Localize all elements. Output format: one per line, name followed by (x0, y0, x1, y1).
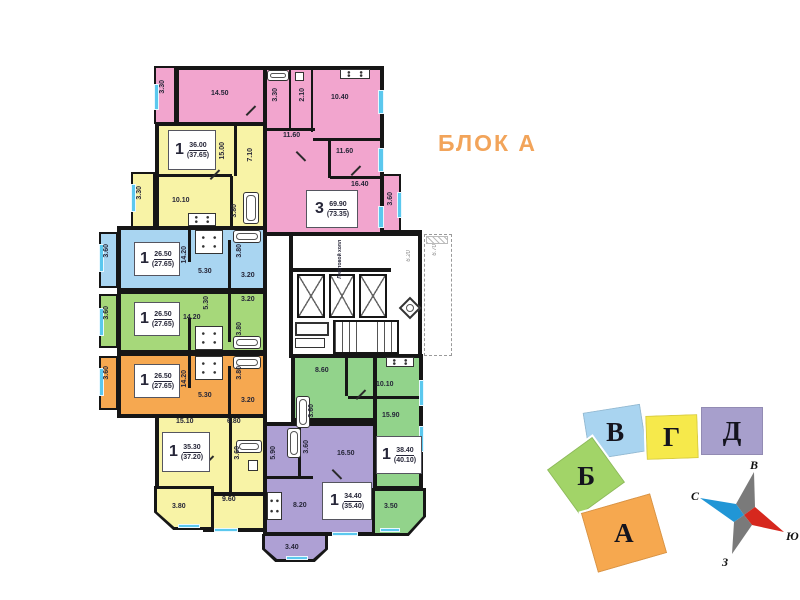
outside-zone (424, 234, 452, 356)
window (286, 556, 308, 560)
wall (265, 128, 315, 131)
service-room (295, 322, 329, 336)
stove-icon (195, 356, 223, 380)
block-title: БЛОК А (438, 130, 537, 157)
compass-label-south: Ю (785, 529, 799, 543)
balcony-area-label: 3.30 (159, 80, 166, 94)
rooms-count: 3 (315, 200, 324, 218)
room-area-label: 8.20 (293, 502, 307, 509)
room-area-label: 10.40 (331, 94, 349, 101)
rooms-count: 1 (140, 372, 149, 390)
rooms-count: 1 (140, 250, 149, 268)
site-map-block-label: Б (577, 461, 595, 492)
elevator-shaft-icon (297, 274, 325, 318)
stove-icon (267, 492, 282, 520)
balcony-area-label: 3.50 (384, 503, 398, 510)
wall (188, 228, 191, 262)
window (178, 524, 200, 528)
apartment-info-box-pink: 3 69.90(73.35) (306, 190, 358, 228)
room-area-label: 3.80 (231, 204, 238, 218)
bathtub-icon (243, 192, 259, 224)
site-map-block-label: Г (663, 422, 680, 453)
bathtub-icon (287, 428, 301, 458)
toilet-icon (248, 460, 258, 471)
compass-label-west: З (721, 555, 728, 569)
balcony-area-label: 3.60 (103, 244, 110, 258)
wall (234, 124, 237, 176)
wall (265, 476, 313, 479)
apartment-area-total: (27.65) (152, 383, 174, 390)
room-area-label: 5.90 (270, 446, 277, 460)
room-area-label: 11.60 (283, 132, 300, 139)
stove-icon (386, 357, 414, 367)
room-area-label: 14.50 (211, 90, 229, 97)
room-area-label: 9.60 (222, 496, 236, 503)
balcony-area-label: 3.80 (172, 503, 186, 510)
wall (230, 176, 233, 228)
room-area-label: 3.30 (272, 88, 279, 102)
room-area-label: 3.60 (303, 440, 310, 454)
apartment-info-box-blue: 1 26.50(27.65) (134, 242, 180, 276)
stairs-icon (333, 320, 399, 354)
room-area-label: 10.10 (172, 197, 190, 204)
stove-icon (340, 69, 370, 79)
wall (158, 174, 232, 177)
wall (228, 240, 231, 290)
apartment-area: 69.90 (329, 201, 347, 210)
compass-label-north: С (691, 489, 700, 503)
apartment-info-box-purple: 1 34.40(35.40) (322, 482, 372, 520)
floor-plan-page: 3.30 14.50 3.30 2.10 10.40 11.60 11.60 1… (0, 0, 800, 600)
wall (313, 138, 381, 141)
apartment-area: 26.50 (154, 251, 172, 260)
balcony-area-label: 3.40 (285, 544, 299, 551)
site-map-block-label: А (614, 518, 634, 549)
apartment-area-total: (37.20) (181, 454, 203, 461)
room-area-label: 3.20 (241, 272, 255, 279)
apartment-info-box-green: 1 26.50(27.65) (134, 302, 180, 336)
window (380, 528, 400, 532)
room-area-label: 5.30 (198, 392, 212, 399)
room-area-label: 5.30 (198, 268, 212, 275)
outside-width-label: 6.70 (432, 244, 438, 256)
room-area-label: 3.60 (308, 404, 315, 418)
apartment-area: 38.40 (396, 447, 414, 456)
wall (188, 354, 191, 388)
window (378, 148, 384, 172)
wall (289, 68, 291, 130)
room-area-label: 3.20 (241, 397, 255, 404)
rooms-count: 1 (169, 443, 178, 461)
window (378, 206, 384, 228)
room-area-label: 3.80 (236, 366, 243, 380)
apartment-area: 26.50 (154, 311, 172, 320)
apartment-area: 36.00 (189, 142, 207, 151)
toilet-icon (295, 72, 304, 81)
apartment-info-box-yellow-top: 1 36.00(37.65) (168, 130, 216, 170)
elevator-hall-label: Лифтовой холл (337, 240, 343, 279)
wall (188, 318, 191, 352)
window (332, 532, 358, 536)
wall (382, 230, 422, 234)
rooms-count: 1 (140, 310, 149, 328)
elevator-shaft-icon (359, 274, 387, 318)
room-area-label: 15.00 (219, 142, 226, 160)
rooms-count: 1 (330, 492, 339, 510)
site-map-block-a[interactable]: А (581, 493, 667, 572)
site-map-block-g[interactable]: Г (645, 414, 699, 460)
wall (328, 140, 331, 178)
compass-rose: В С Ю З (690, 458, 800, 570)
wall (229, 416, 232, 494)
apartment-area: 35.30 (183, 444, 201, 453)
apartment-area-total: (40.10) (394, 457, 416, 464)
apartment-info-box-yellow-bottom: 1 35.30(37.20) (162, 432, 210, 472)
balcony-area-label: 3.60 (387, 192, 394, 206)
room-area-label: 14.20 (181, 370, 188, 388)
room-area-label: 6.80 (227, 418, 241, 425)
apartment-area-total: (27.65) (152, 261, 174, 268)
corridor-width-label: 6.20 (406, 250, 412, 262)
wall (311, 68, 313, 132)
apartment-area: 26.50 (154, 373, 172, 382)
room-area-label: 3.80 (236, 322, 243, 336)
apartment-area-total: (37.65) (187, 152, 209, 159)
service-room (295, 338, 325, 348)
balcony-area-label: 3.60 (103, 366, 110, 380)
apartment-info-box-green-bottom: 1 38.40(40.10) (376, 436, 422, 474)
room-area-label: 3.80 (236, 244, 243, 258)
window (214, 528, 238, 532)
site-map-block-label: Д (723, 416, 742, 447)
stove-icon (195, 230, 223, 254)
window (419, 380, 424, 406)
room-area-label: 5.30 (203, 296, 210, 310)
apartment-area-total: (35.40) (342, 503, 364, 510)
compass-arm-south (744, 507, 784, 532)
room-area-label: 2.10 (299, 88, 306, 102)
room-area-label: 16.40 (351, 181, 369, 188)
elevator-shaft-icon (329, 274, 355, 318)
wall (330, 176, 382, 179)
room-area-label: 3.60 (234, 446, 241, 460)
site-map-block-d[interactable]: Д (701, 407, 763, 455)
room-area-label: 15.90 (382, 412, 400, 419)
wall (228, 292, 231, 342)
bathtub-icon (233, 336, 261, 349)
balcony-area-label: 3.30 (136, 186, 143, 200)
apartment-area-total: (73.35) (327, 211, 349, 218)
room-area-label: 11.60 (336, 148, 353, 155)
room-area-label: 14.20 (183, 314, 201, 321)
room-area-label: 3.20 (241, 296, 255, 303)
compass-label-east: В (749, 458, 758, 472)
rooms-count: 1 (382, 446, 391, 464)
room-area-label: 14.20 (181, 246, 188, 264)
window (397, 192, 402, 218)
bathtub-icon (233, 230, 261, 243)
room-area-label: 7.10 (247, 148, 254, 162)
room-area-label: 10.10 (376, 381, 394, 388)
room-area-label: 15.10 (176, 418, 194, 425)
wall (345, 356, 348, 396)
bathtub-icon (267, 70, 289, 81)
site-map-block-label: В (606, 417, 624, 448)
rooms-count: 1 (175, 141, 184, 159)
balcony-area-label: 3.60 (103, 306, 110, 320)
apartment-area: 34.40 (344, 493, 362, 502)
stove-icon (188, 213, 216, 226)
room-area-label: 8.60 (315, 367, 329, 374)
apartment-info-box-orange: 1 26.50(27.65) (134, 364, 180, 398)
wall (228, 366, 231, 416)
stove-icon (195, 326, 223, 350)
window (378, 90, 384, 114)
apartment-area-total: (27.65) (152, 321, 174, 328)
room-area-label: 16.50 (337, 450, 355, 457)
